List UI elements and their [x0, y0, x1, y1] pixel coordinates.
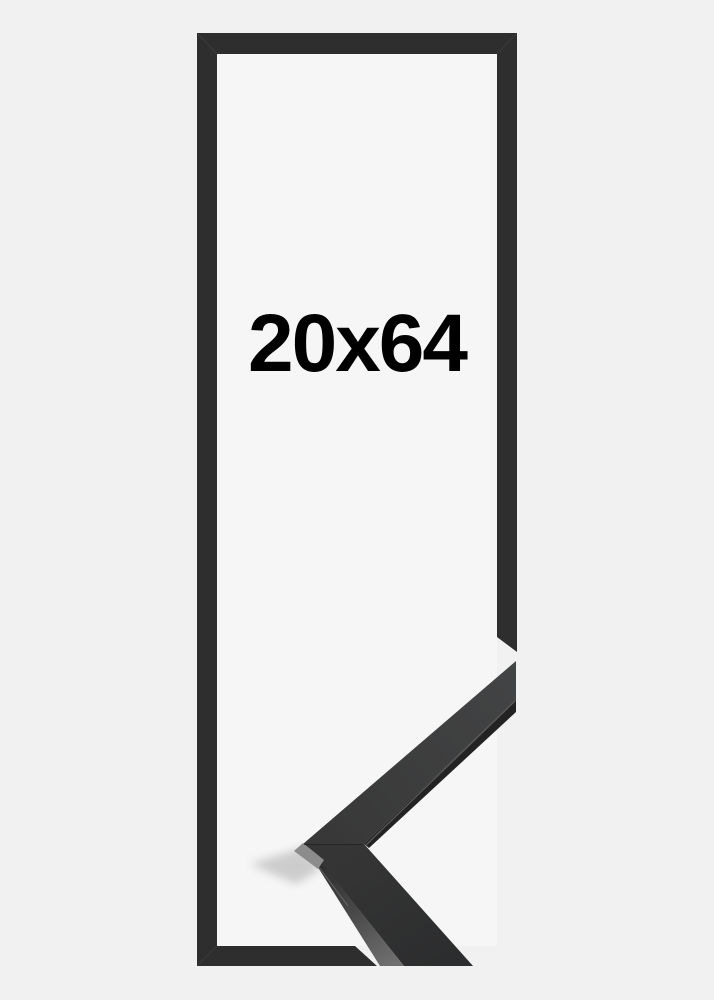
frame-graphic — [0, 0, 714, 1000]
size-label: 20x64 — [217, 296, 497, 392]
product-image: 20x64 — [0, 0, 714, 1000]
